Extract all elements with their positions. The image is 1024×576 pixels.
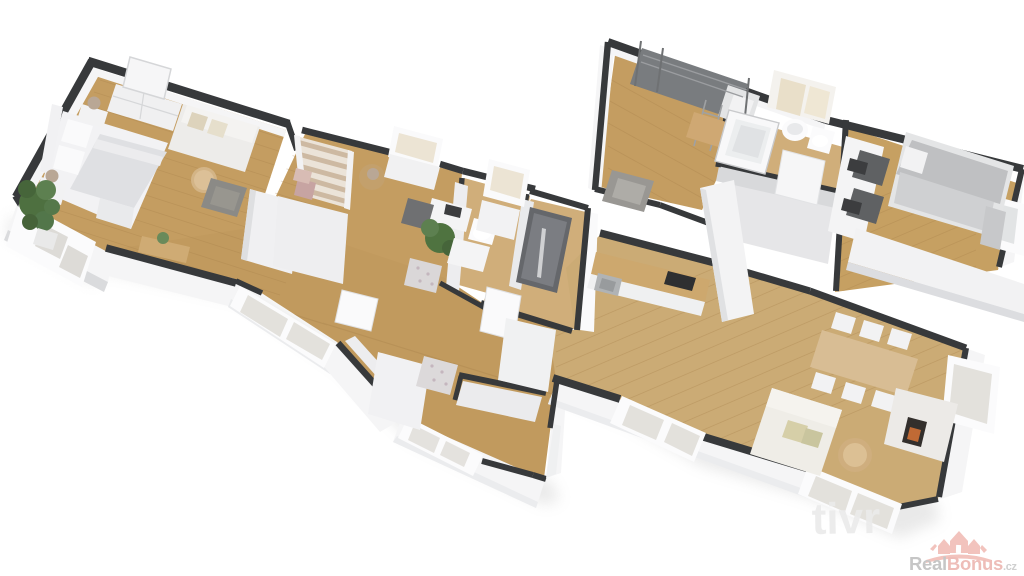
svg-text:tivr: tivr <box>811 494 880 544</box>
svg-text:RealBonus.cz: RealBonus.cz <box>909 553 1018 574</box>
